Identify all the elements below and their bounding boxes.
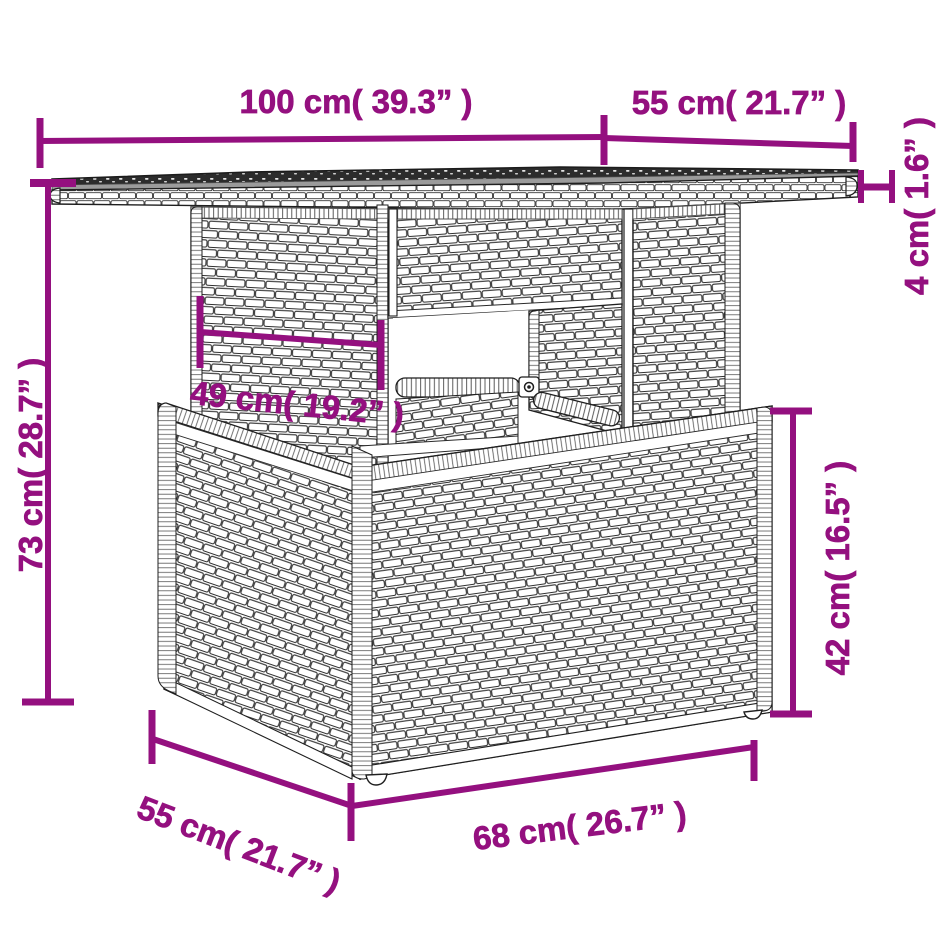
svg-text:55 cm( 21.7” ): 55 cm( 21.7” ): [632, 84, 847, 121]
svg-text:73 cm( 28.7” ): 73 cm( 28.7” ): [12, 358, 49, 573]
svg-text:42 cm( 16.5” ): 42 cm( 16.5” ): [819, 461, 856, 676]
svg-text:4 cm( 1.6” ): 4 cm( 1.6” ): [898, 117, 935, 295]
svg-text:100 cm( 39.3” ): 100 cm( 39.3” ): [240, 83, 473, 120]
